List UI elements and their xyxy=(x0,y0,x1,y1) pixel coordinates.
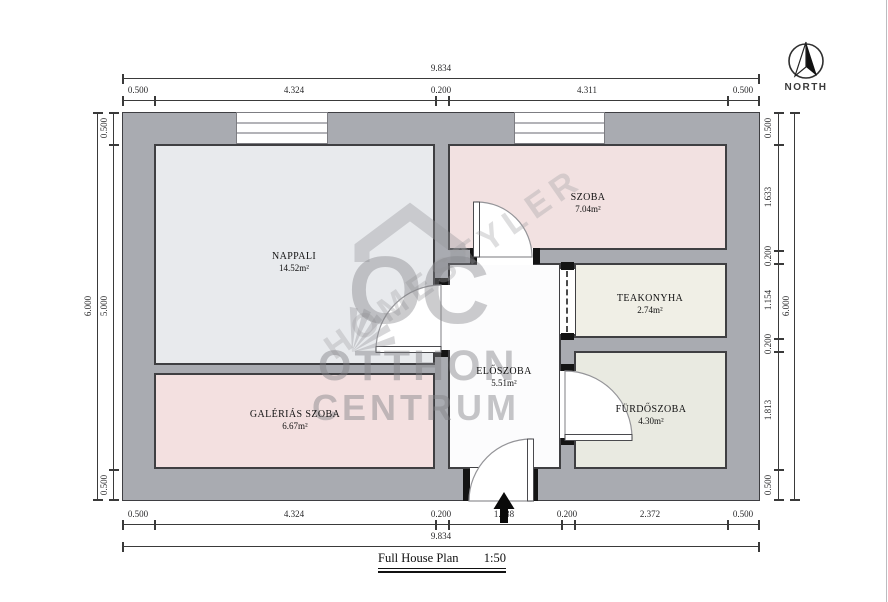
door-swing-entrance xyxy=(469,439,534,501)
label-szoba: SZOBA 7.04m² xyxy=(571,192,606,214)
room-name: GALÉRIÁS SZOBA xyxy=(250,409,340,421)
plan-scale: 1:50 xyxy=(484,551,506,566)
room-area: 6.67m² xyxy=(250,421,340,431)
room-area: 5.51m² xyxy=(476,378,531,388)
plan-overlay-graphics xyxy=(0,0,888,602)
label-furdoszoba: FÜRDŐSZOBA 4.30m² xyxy=(616,404,687,426)
north-compass-icon xyxy=(789,42,823,78)
room-area: 14.52m² xyxy=(272,263,316,273)
room-area: 7.04m² xyxy=(571,204,606,214)
title-block: Full House Plan 1:50 xyxy=(378,551,506,573)
room-name: NAPPALI xyxy=(272,251,316,263)
north-label: NORTH xyxy=(784,82,827,93)
plan-title: Full House Plan xyxy=(378,551,459,566)
floor-plan-page: HOMESTYLER OC OTTHON CENTRUM NAPPALI 14.… xyxy=(0,0,888,602)
label-nappali: NAPPALI 14.52m² xyxy=(272,251,316,273)
label-teakonyha: TEAKONYHA 2.74m² xyxy=(617,293,683,315)
room-name: TEAKONYHA xyxy=(617,293,683,305)
label-galerias-szoba: GALÉRIÁS SZOBA 6.67m² xyxy=(250,409,340,431)
room-area: 4.30m² xyxy=(616,416,687,426)
room-area: 2.74m² xyxy=(617,305,683,315)
door-swing-szoba xyxy=(474,202,533,257)
room-name: FÜRDŐSZOBA xyxy=(616,404,687,416)
room-name: ELŐSZOBA xyxy=(476,366,531,378)
door-swing-nappali xyxy=(376,285,441,353)
title-underline xyxy=(378,571,506,573)
label-eloszoba: ELŐSZOBA 5.51m² xyxy=(476,366,531,388)
room-name: SZOBA xyxy=(571,192,606,204)
